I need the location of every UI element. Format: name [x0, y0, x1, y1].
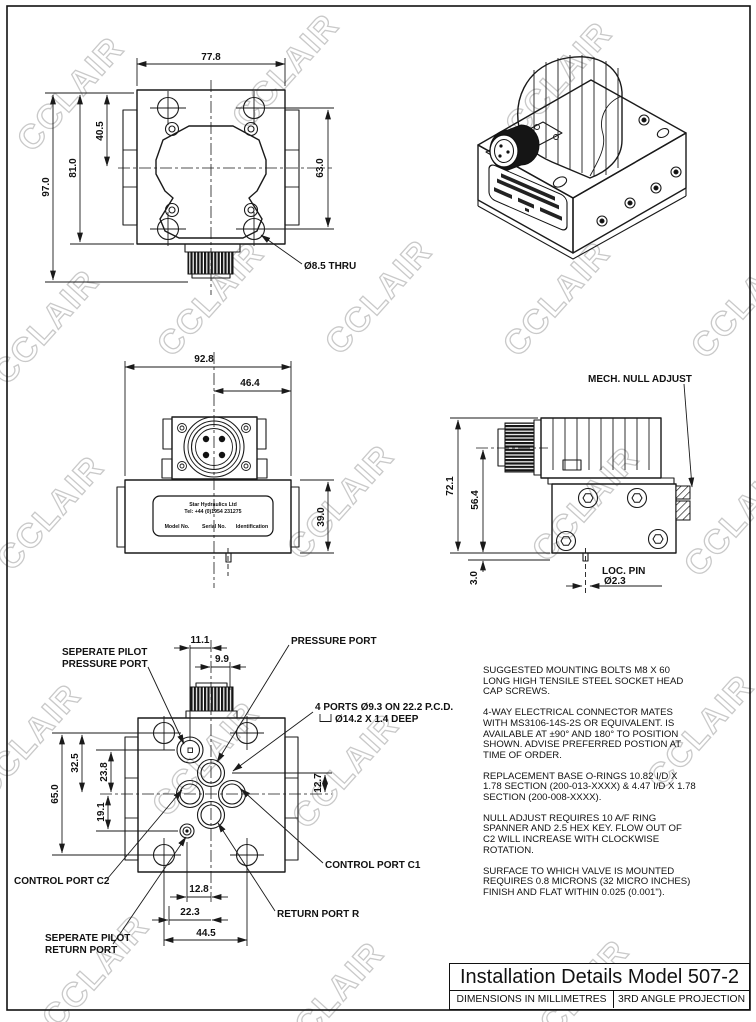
note-electrical-connector: 4-WAY ELECTRICAL CONNECTOR MATES WITH MS…: [483, 708, 751, 762]
dim-81-0: 81.0: [68, 158, 79, 178]
label-return-port: RETURN PORT R: [277, 909, 360, 920]
note-o-rings: REPLACEMENT BASE O-RINGS 10.82 I/D X 1.7…: [483, 772, 751, 804]
dim-23-8: 23.8: [99, 762, 110, 782]
dim-46-4: 46.4: [240, 378, 260, 389]
dim-39-0: 39.0: [316, 507, 327, 527]
dim-56-4: 56.4: [470, 490, 481, 510]
socket-screws: [557, 489, 668, 551]
top-view-drawing: Star Hydraulics Ltd Tel: +44 (0)1954 231…: [117, 352, 334, 588]
coil-fins: [534, 55, 618, 176]
isometric-view-drawing: [478, 55, 686, 259]
projection-note: 3RD ANGLE PROJECTION: [614, 991, 749, 1008]
dim-63-0: 63.0: [315, 158, 326, 178]
dimensions-units-note: DIMENSIONS IN MILLIMETRES: [450, 991, 614, 1008]
nameplate-company: Star Hydraulics Ltd: [189, 502, 237, 508]
note-null-adjust: NULL ADJUST REQUIRES 10 A/F RING SPANNER…: [483, 814, 751, 857]
dim-19-1: 19.1: [96, 802, 107, 822]
dim-32-5: 32.5: [70, 753, 81, 773]
notes-block: SUGGESTED MOUNTING BOLTS M8 X 60 LONG HI…: [483, 666, 751, 909]
note-surface-finish: SURFACE TO WHICH VALVE IS MOUNTED REQUIR…: [483, 867, 751, 899]
drawing-title: Installation Details Model 507-2: [450, 964, 749, 991]
null-adjuster: [676, 486, 690, 520]
note-mounting-bolts: SUGGESTED MOUNTING BOLTS M8 X 60 LONG HI…: [483, 666, 751, 698]
label-4-ports: 4 PORTS Ø9.3 ON 22.2 P.C.D.: [315, 702, 453, 713]
dim-12-7: 12.7: [313, 773, 324, 793]
callout-hole-thru: Ø8.5 THRU: [304, 261, 356, 272]
nameplate-identification: Identification: [236, 524, 268, 530]
dim-11-1: 11.1: [191, 635, 210, 646]
dim-44-5: 44.5: [196, 928, 216, 939]
base-view-drawing: 11.1 9.9 65.0 32.5 23.8 19.1 12.7 12.8 2…: [14, 635, 453, 956]
title-block: Installation Details Model 507-2 DIMENSI…: [449, 963, 750, 1010]
nameplate-phone: Tel: +44 (0)1954 231275: [184, 509, 241, 515]
dim-65-0: 65.0: [50, 784, 61, 804]
counterbore-icon: [320, 714, 331, 722]
label-sep-pilot-return-line1: SEPERATE PILOT: [45, 933, 130, 944]
dim-77-8: 77.8: [201, 52, 221, 63]
nameplate-model-no: Model No.: [165, 524, 190, 530]
dim-97-0: 97.0: [41, 177, 52, 197]
coil-fins-side: [553, 418, 649, 470]
cover-screws: [166, 123, 258, 217]
callout-pin-dia: Ø2.3: [604, 576, 626, 587]
dim-9-9: 9.9: [215, 654, 229, 665]
dim-72-1: 72.1: [445, 476, 456, 496]
connector-plug: [490, 125, 539, 170]
electrical-connector: [185, 244, 240, 278]
drawing-sheet: CCLAIR CCLAIR CCLAIR CCLAIR CCLAIR CCLAI…: [0, 0, 756, 1022]
dim-12-8: 12.8: [189, 884, 209, 895]
label-counterbore: Ø14.2 X 1.4 DEEP: [335, 714, 419, 725]
label-sep-pilot-pressure-line2: PRESSURE PORT: [62, 659, 148, 670]
dim-22-3: 22.3: [180, 907, 200, 918]
side-view-drawing: 72.1 56.4 3.0 MECH. NULL ADJUST LOC. PIN…: [445, 374, 692, 596]
nameplate: Star Hydraulics Ltd Tel: +44 (0)1954 231…: [153, 496, 273, 536]
dim-40-5: 40.5: [95, 121, 106, 141]
label-control-port-c2: CONTROL PORT C2: [14, 876, 110, 887]
label-pressure-port: PRESSURE PORT: [291, 636, 377, 647]
front-view-drawing: 77.8 40.5 81.0 97.0 63.0 Ø8.5 THRU: [41, 52, 356, 295]
label-sep-pilot-return-line2: RETURN PORT: [45, 945, 117, 956]
dim-92-8: 92.8: [194, 354, 214, 365]
label-control-port-c1: CONTROL PORT C1: [325, 860, 421, 871]
dim-3-0: 3.0: [469, 571, 480, 585]
callout-null-adjust: MECH. NULL ADJUST: [588, 374, 692, 385]
label-sep-pilot-pressure-line1: SEPERATE PILOT: [62, 647, 147, 658]
